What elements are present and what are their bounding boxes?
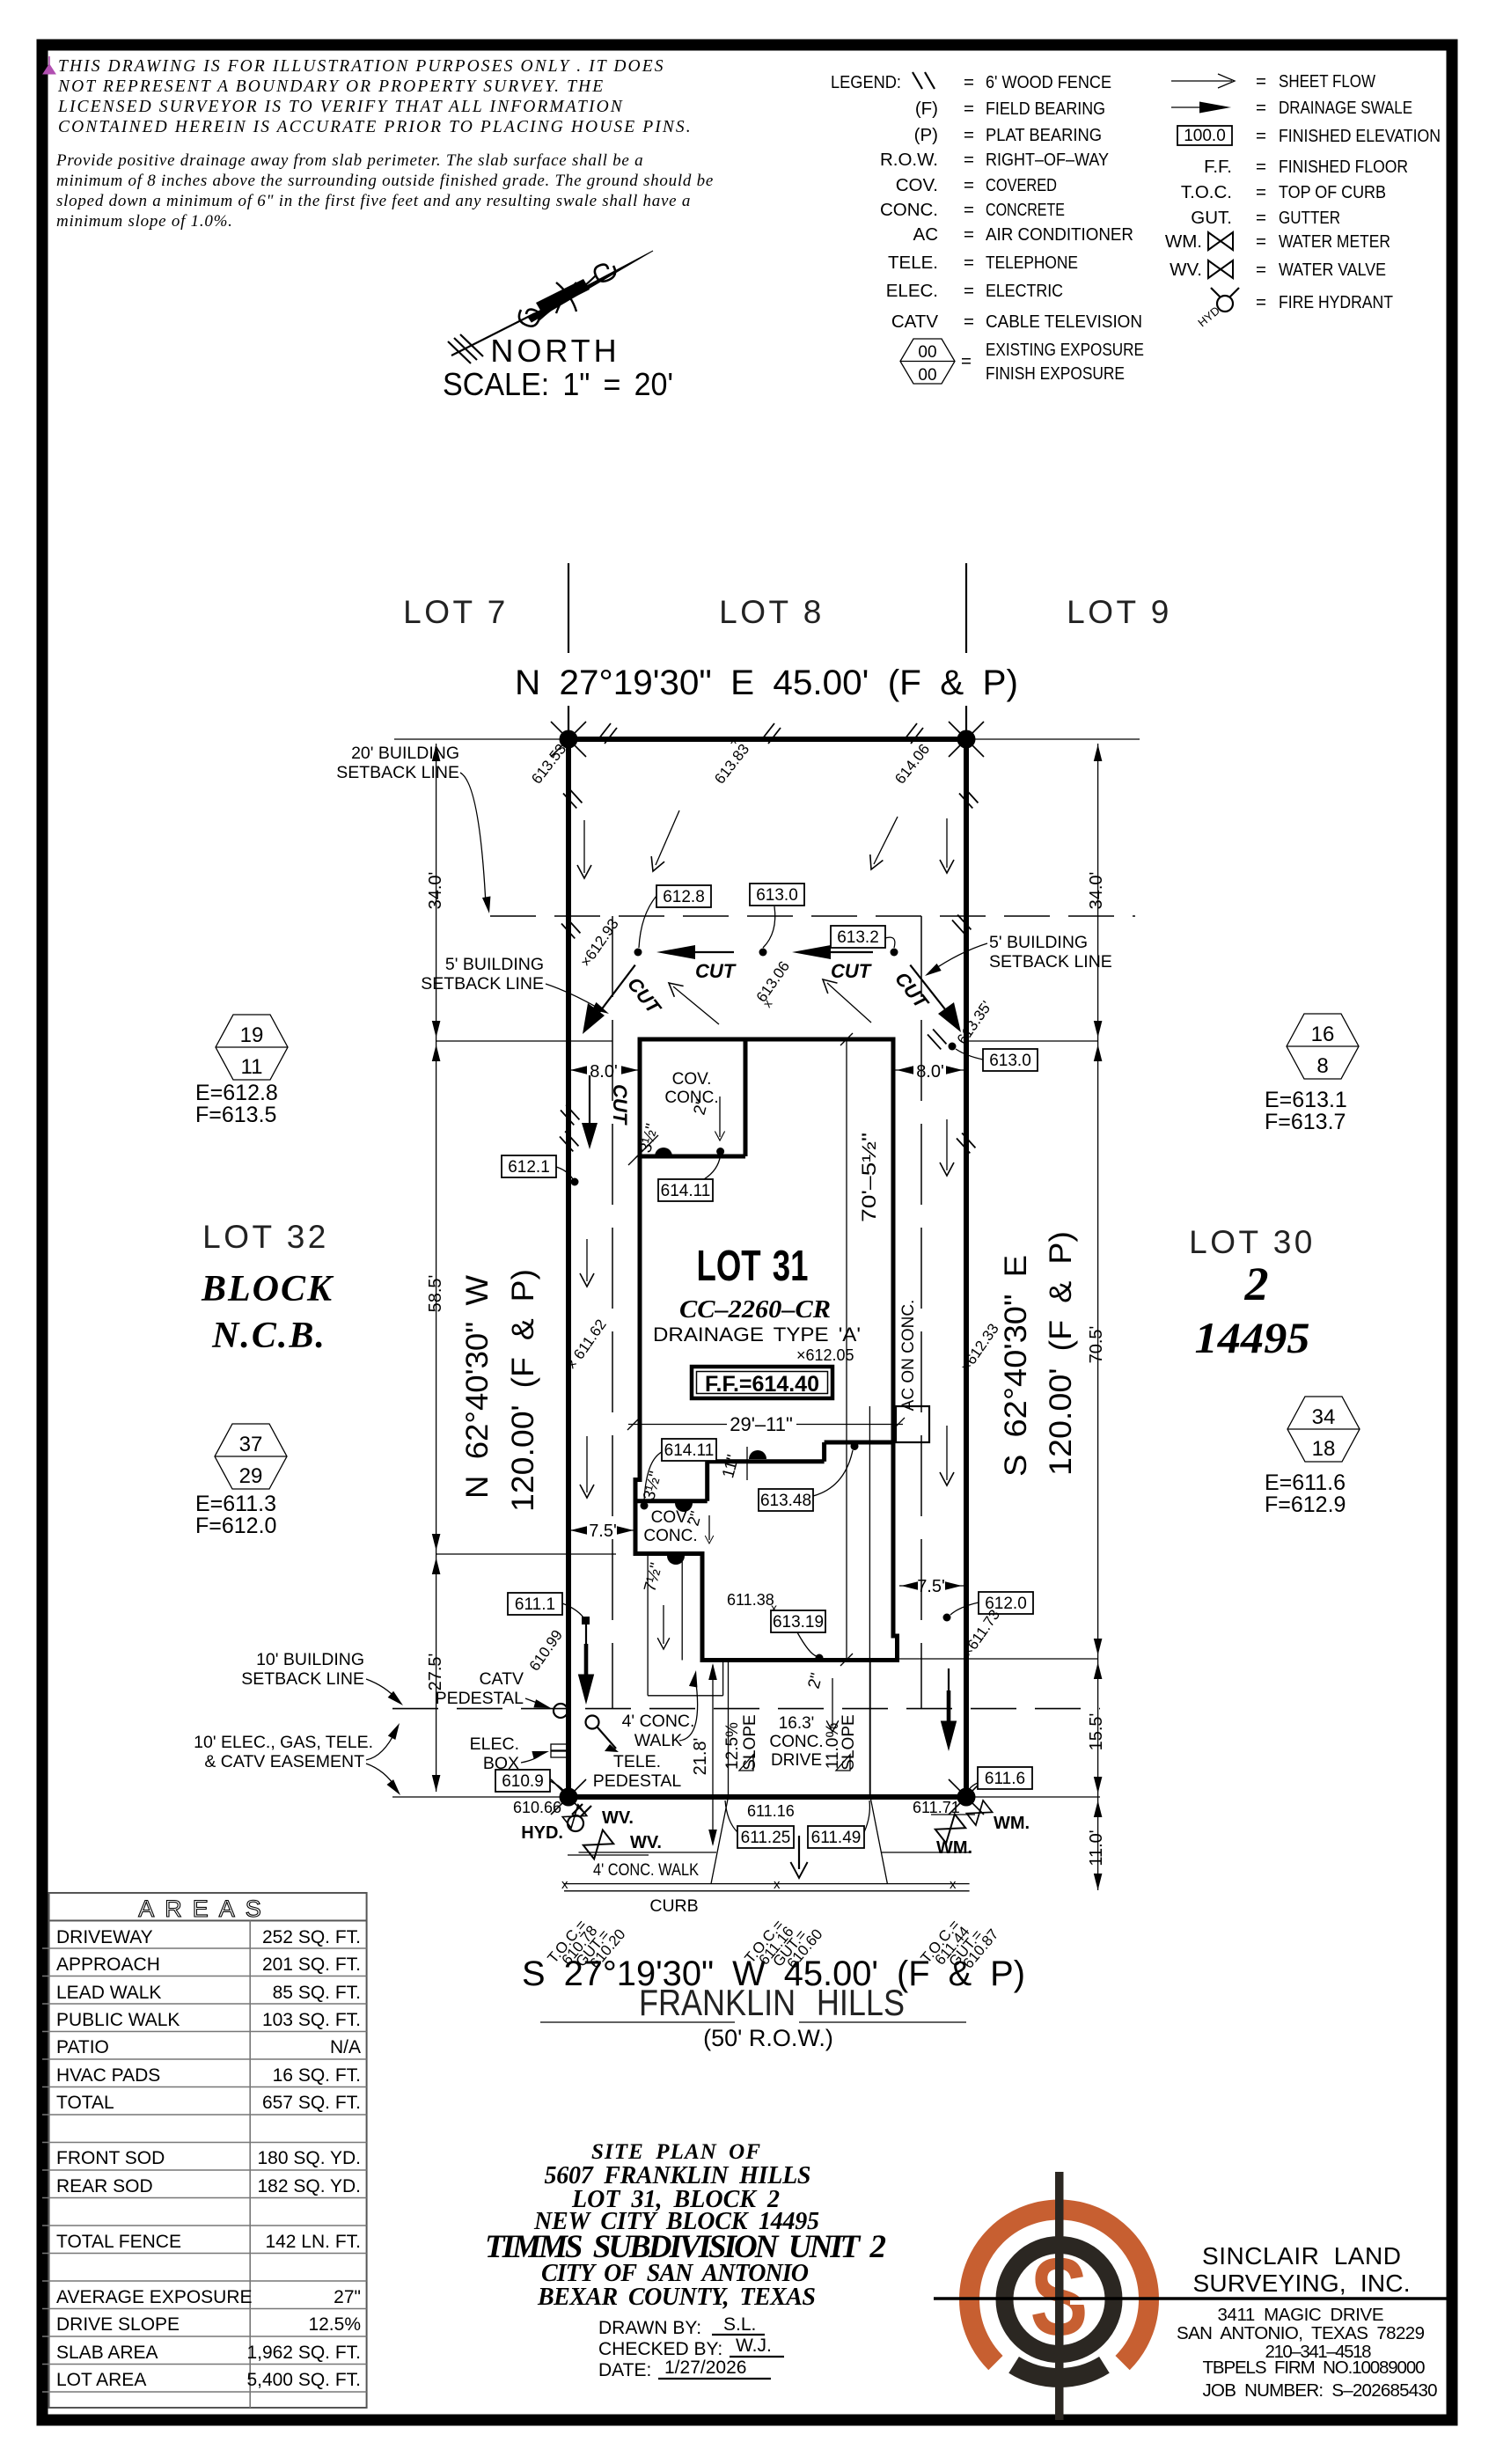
svg-text:=: = bbox=[964, 281, 974, 301]
svg-text:8.0': 8.0' bbox=[590, 1062, 618, 1082]
svg-text:LICENSED SURVEYOR IS TO VERIFY: LICENSED SURVEYOR IS TO VERIFY THAT ALL … bbox=[57, 98, 624, 116]
svg-text:LEAD WALK: LEAD WALK bbox=[56, 1983, 161, 2003]
svg-text:ELEC.: ELEC. bbox=[886, 281, 938, 301]
svg-text:2: 2 bbox=[1244, 1258, 1269, 1310]
svg-text:613.0: 613.0 bbox=[756, 886, 798, 905]
svg-text:SETBACK LINE: SETBACK LINE bbox=[989, 952, 1112, 972]
svg-text:F=612.9: F=612.9 bbox=[1265, 1492, 1346, 1517]
svg-text:7.5': 7.5' bbox=[589, 1522, 617, 1541]
svg-text:613.2: 613.2 bbox=[837, 928, 879, 947]
svg-text:F=613.5: F=613.5 bbox=[195, 1103, 276, 1127]
svg-text:14495: 14495 bbox=[1195, 1313, 1310, 1362]
svg-text:58.5': 58.5' bbox=[426, 1275, 445, 1313]
svg-text:TOTAL: TOTAL bbox=[56, 2093, 114, 2113]
svg-text:SCALE: 1" = 20': SCALE: 1" = 20' bbox=[443, 366, 673, 402]
svg-text:611.71: 611.71 bbox=[913, 1799, 960, 1816]
svg-text:SETBACK LINE: SETBACK LINE bbox=[241, 1669, 364, 1689]
svg-text:LOT AREA: LOT AREA bbox=[56, 2370, 146, 2390]
svg-text:8: 8 bbox=[1316, 1054, 1328, 1078]
svg-text:N.C.B.: N.C.B. bbox=[211, 1316, 326, 1356]
svg-text:WV.: WV. bbox=[630, 1833, 662, 1852]
svg-text:S.L.: S.L. bbox=[723, 2314, 756, 2335]
svg-text:x: x bbox=[561, 1877, 568, 1892]
svg-text:611.6: 611.6 bbox=[985, 1770, 1025, 1788]
svg-text:70.5': 70.5' bbox=[1087, 1326, 1106, 1364]
svg-text:=: = bbox=[1256, 292, 1266, 312]
svg-text:10' ELEC., GAS, TELE.: 10' ELEC., GAS, TELE. bbox=[194, 1733, 373, 1752]
svg-text:611.16: 611.16 bbox=[747, 1802, 795, 1820]
svg-text:TOP OF CURB: TOP OF CURB bbox=[1279, 182, 1386, 202]
svg-text:CUT: CUT bbox=[695, 960, 737, 982]
svg-text:=: = bbox=[964, 253, 974, 273]
svg-text:=: = bbox=[964, 224, 974, 245]
svg-text:COV.: COV. bbox=[896, 175, 938, 195]
svg-text:CONC.: CONC. bbox=[643, 1527, 697, 1545]
svg-text:=: = bbox=[964, 99, 974, 119]
svg-text:ELECTRIC: ELECTRIC bbox=[986, 281, 1063, 301]
svg-text:=: = bbox=[1256, 126, 1266, 146]
svg-text:10' BUILDING: 10' BUILDING bbox=[256, 1650, 364, 1669]
svg-text:CATV: CATV bbox=[891, 312, 938, 332]
svg-text:BOX: BOX bbox=[483, 1754, 519, 1773]
svg-text:S 62°40'30" E: S 62°40'30" E bbox=[998, 1255, 1033, 1477]
svg-text:=: = bbox=[1256, 98, 1266, 118]
svg-text:E=611.6: E=611.6 bbox=[1265, 1470, 1346, 1495]
svg-text:5,400 SQ. FT.: 5,400 SQ. FT. bbox=[246, 2370, 361, 2390]
svg-text:19: 19 bbox=[240, 1023, 264, 1047]
svg-text:COV.: COV. bbox=[672, 1070, 712, 1089]
svg-text:E=613.1: E=613.1 bbox=[1265, 1088, 1347, 1112]
svg-text:LOT 32: LOT 32 bbox=[202, 1219, 329, 1255]
svg-text:=: = bbox=[1256, 260, 1266, 280]
svg-text:CONTAINED HEREIN IS ACCURATE P: CONTAINED HEREIN IS ACCURATE PRIOR TO PL… bbox=[58, 118, 693, 136]
svg-text:CC–2260–CR: CC–2260–CR bbox=[679, 1296, 831, 1324]
svg-text:CONCRETE: CONCRETE bbox=[986, 200, 1065, 220]
svg-text:SETBACK LINE: SETBACK LINE bbox=[336, 763, 459, 782]
svg-text:=: = bbox=[964, 72, 974, 92]
svg-text:W.J.: W.J. bbox=[736, 2336, 772, 2356]
svg-text:DRAINAGE SWALE: DRAINAGE SWALE bbox=[1279, 98, 1412, 118]
svg-text:T.O.C.: T.O.C. bbox=[1181, 182, 1232, 202]
svg-text:613.0: 613.0 bbox=[989, 1052, 1031, 1070]
svg-text:=: = bbox=[961, 351, 972, 371]
svg-text:SETBACK LINE: SETBACK LINE bbox=[421, 974, 544, 994]
svg-text:SINCLAIR LAND: SINCLAIR LAND bbox=[1202, 2242, 1401, 2270]
svg-text:16.3': 16.3' bbox=[779, 1714, 815, 1733]
svg-text:GUTTER: GUTTER bbox=[1279, 208, 1340, 228]
svg-text:00: 00 bbox=[918, 343, 936, 362]
svg-text:TBPELS FIRM NO.10089000: TBPELS FIRM NO.10089000 bbox=[1203, 2358, 1426, 2378]
svg-text:LOT 8: LOT 8 bbox=[719, 594, 825, 630]
svg-text:37: 37 bbox=[239, 1433, 263, 1456]
svg-text:DRAWN BY:: DRAWN BY: bbox=[598, 2318, 701, 2338]
svg-text:PLAT BEARING: PLAT BEARING bbox=[986, 125, 1102, 145]
svg-text:657 SQ. FT.: 657 SQ. FT. bbox=[262, 2093, 361, 2113]
svg-text:85 SQ. FT.: 85 SQ. FT. bbox=[273, 1983, 361, 2003]
svg-text:12.5%: 12.5% bbox=[308, 2314, 361, 2335]
svg-text:NORTH: NORTH bbox=[490, 333, 620, 369]
svg-text:SAN ANTONIO, TEXAS 78229: SAN ANTONIO, TEXAS 78229 bbox=[1177, 2323, 1425, 2343]
svg-text:TELE.: TELE. bbox=[613, 1752, 661, 1771]
svg-text:WM.: WM. bbox=[936, 1838, 972, 1858]
svg-text:18: 18 bbox=[1312, 1437, 1336, 1461]
svg-text:34.0': 34.0' bbox=[1087, 872, 1106, 910]
svg-text:(50' R.O.W.): (50' R.O.W.) bbox=[703, 2025, 833, 2051]
svg-text:142 LN. FT.: 142 LN. FT. bbox=[265, 2232, 361, 2252]
svg-text:AREAS: AREAS bbox=[138, 1896, 272, 1922]
svg-text:SHEET FLOW: SHEET FLOW bbox=[1279, 71, 1376, 92]
svg-text:N 27°19'30" E 45.00' (F & P): N 27°19'30" E 45.00' (F & P) bbox=[515, 664, 1018, 702]
svg-text:613.19: 613.19 bbox=[773, 1613, 824, 1632]
svg-text:8.0': 8.0' bbox=[916, 1062, 944, 1082]
svg-text:E=611.3: E=611.3 bbox=[195, 1492, 276, 1516]
svg-text:F=613.7: F=613.7 bbox=[1265, 1110, 1346, 1134]
svg-text:x: x bbox=[730, 732, 737, 746]
svg-text:COVERED: COVERED bbox=[986, 175, 1057, 195]
svg-text:CABLE TELEVISION: CABLE TELEVISION bbox=[986, 312, 1142, 332]
svg-text:614.11: 614.11 bbox=[664, 1441, 715, 1460]
svg-text:DRAINAGE TYPE 'A': DRAINAGE TYPE 'A' bbox=[653, 1324, 861, 1346]
svg-text:DRIVE: DRIVE bbox=[771, 1751, 822, 1770]
svg-text:612.1: 612.1 bbox=[508, 1158, 550, 1177]
svg-text:=: = bbox=[964, 125, 974, 145]
svg-text:34: 34 bbox=[1312, 1405, 1336, 1429]
svg-text:FRONT SOD: FRONT SOD bbox=[56, 2148, 165, 2168]
svg-text:21.8': 21.8' bbox=[691, 1738, 710, 1776]
svg-text:minimum slope of 1.0%.: minimum slope of 1.0%. bbox=[56, 212, 233, 231]
svg-text:WV.: WV. bbox=[602, 1808, 634, 1828]
svg-text:12.5%: 12.5% bbox=[723, 1722, 742, 1770]
svg-text:SLOPE: SLOPE bbox=[840, 1714, 858, 1770]
svg-text:1/27/2026: 1/27/2026 bbox=[664, 2358, 746, 2378]
svg-text:610.9: 610.9 bbox=[502, 1772, 544, 1791]
svg-text:SITE PLAN OF: SITE PLAN OF bbox=[591, 2140, 760, 2164]
svg-text:FINISHED FLOOR: FINISHED FLOOR bbox=[1279, 157, 1408, 177]
svg-text:x: x bbox=[774, 1877, 781, 1892]
svg-text:AC ON CONC.: AC ON CONC. bbox=[899, 1300, 918, 1412]
svg-text:16: 16 bbox=[1311, 1023, 1335, 1046]
svg-text:PATIO: PATIO bbox=[56, 2037, 109, 2057]
svg-text:N/A: N/A bbox=[330, 2037, 361, 2057]
svg-text:611.1: 611.1 bbox=[515, 1595, 555, 1614]
svg-text:CURB: CURB bbox=[649, 1896, 698, 1916]
svg-text:& CATV EASEMENT: & CATV EASEMENT bbox=[204, 1752, 364, 1771]
svg-text:F=612.0: F=612.0 bbox=[195, 1514, 276, 1538]
svg-text:27": 27" bbox=[334, 2287, 361, 2307]
svg-text:F.F.: F.F. bbox=[1204, 157, 1232, 177]
svg-text:HYD.: HYD. bbox=[521, 1823, 563, 1843]
svg-text:120.00' (F & P): 120.00' (F & P) bbox=[1043, 1231, 1078, 1476]
svg-text:TOTAL FENCE: TOTAL FENCE bbox=[56, 2232, 181, 2252]
svg-text:NOT REPRESENT A BOUNDARY OR PR: NOT REPRESENT A BOUNDARY OR PROPERTY SUR… bbox=[57, 77, 605, 96]
svg-text:120.00' (F & P): 120.00' (F & P) bbox=[505, 1269, 540, 1512]
svg-text:20' BUILDING: 20' BUILDING bbox=[351, 744, 459, 763]
svg-text:=: = bbox=[964, 200, 974, 220]
svg-text:WV.: WV. bbox=[1170, 260, 1202, 280]
svg-text:11.0': 11.0' bbox=[1087, 1830, 1106, 1866]
svg-text:=: = bbox=[964, 312, 974, 332]
svg-text:=: = bbox=[964, 150, 974, 170]
svg-text:minimum of 8 inches above the: minimum of 8 inches above the surroundin… bbox=[56, 172, 714, 190]
svg-text:1,962 SQ. FT.: 1,962 SQ. FT. bbox=[246, 2343, 361, 2363]
svg-text:x: x bbox=[950, 1877, 957, 1892]
svg-text:29: 29 bbox=[239, 1464, 263, 1488]
svg-text:CUT: CUT bbox=[831, 960, 872, 982]
svg-text:PEDESTAL: PEDESTAL bbox=[593, 1771, 682, 1791]
svg-text:WM.: WM. bbox=[1165, 231, 1202, 252]
svg-text:LOT 7: LOT 7 bbox=[403, 594, 509, 630]
svg-text:WM.: WM. bbox=[994, 1814, 1030, 1833]
svg-text:LOT 30: LOT 30 bbox=[1189, 1224, 1316, 1260]
svg-text:DRIVE SLOPE: DRIVE SLOPE bbox=[56, 2314, 180, 2335]
svg-text:611.25: 611.25 bbox=[741, 1829, 791, 1847]
svg-text:F.F.=614.40: F.F.=614.40 bbox=[705, 1372, 819, 1397]
svg-text:27.5': 27.5' bbox=[426, 1654, 445, 1691]
svg-text:LOT 9: LOT 9 bbox=[1067, 594, 1172, 630]
svg-text:103 SQ. FT.: 103 SQ. FT. bbox=[262, 2010, 361, 2030]
svg-text:611.49: 611.49 bbox=[811, 1829, 862, 1847]
svg-text:DRIVEWAY: DRIVEWAY bbox=[56, 1927, 153, 1947]
svg-text:WATER METER: WATER METER bbox=[1279, 231, 1390, 252]
svg-text:34.0': 34.0' bbox=[426, 872, 445, 910]
svg-text:610.66: 610.66 bbox=[513, 1799, 561, 1816]
svg-text:FINISHED ELEVATION: FINISHED ELEVATION bbox=[1279, 126, 1441, 146]
svg-text:AVERAGE EXPOSURE: AVERAGE EXPOSURE bbox=[56, 2287, 253, 2307]
svg-text:(P): (P) bbox=[914, 125, 938, 145]
svg-text:612.8: 612.8 bbox=[663, 888, 705, 906]
svg-text:REAR SOD: REAR SOD bbox=[56, 2176, 153, 2196]
svg-text:11: 11 bbox=[241, 1055, 263, 1079]
svg-text:BEXAR COUNTY, TEXAS: BEXAR COUNTY, TEXAS bbox=[537, 2284, 816, 2311]
svg-text:BLOCK: BLOCK bbox=[201, 1269, 334, 1309]
svg-text:FIELD BEARING: FIELD BEARING bbox=[986, 99, 1105, 119]
svg-text:×612.05: ×612.05 bbox=[796, 1346, 854, 1364]
svg-text:PEDESTAL: PEDESTAL bbox=[436, 1689, 524, 1708]
svg-text:TELE.: TELE. bbox=[888, 253, 938, 273]
svg-text:00: 00 bbox=[918, 366, 936, 385]
svg-text:FRANKLIN HILLS: FRANKLIN HILLS bbox=[639, 1982, 905, 2023]
svg-text:SLAB AREA: SLAB AREA bbox=[56, 2343, 158, 2363]
svg-text:FINISH EXPOSURE: FINISH EXPOSURE bbox=[986, 363, 1125, 384]
svg-text:RIGHT–OF–WAY: RIGHT–OF–WAY bbox=[986, 150, 1109, 170]
svg-text:THIS DRAWING IS FOR ILLUSTRATI: THIS DRAWING IS FOR ILLUSTRATION PURPOSE… bbox=[58, 57, 665, 76]
svg-text:(F): (F) bbox=[915, 99, 938, 119]
svg-text:7.5': 7.5' bbox=[917, 1577, 945, 1596]
svg-text:Provide positive drainage away: Provide positive drainage away from slab… bbox=[55, 151, 643, 170]
svg-text:70'–5½": 70'–5½" bbox=[858, 1133, 880, 1222]
svg-text:ELEC.: ELEC. bbox=[470, 1734, 519, 1754]
svg-text:PUBLIC WALK: PUBLIC WALK bbox=[56, 2010, 180, 2030]
svg-text:WALK: WALK bbox=[634, 1731, 683, 1750]
svg-text:100.0: 100.0 bbox=[1184, 127, 1226, 145]
svg-text:TELEPHONE: TELEPHONE bbox=[986, 253, 1078, 273]
svg-text:=: = bbox=[1256, 157, 1266, 177]
svg-text:=: = bbox=[1256, 231, 1266, 252]
svg-text:4' CONC.: 4' CONC. bbox=[622, 1712, 695, 1731]
svg-text:611.38: 611.38 bbox=[727, 1591, 774, 1609]
svg-text:29'–11": 29'–11" bbox=[730, 1413, 793, 1435]
svg-text:5' BUILDING: 5' BUILDING bbox=[445, 955, 544, 974]
svg-text:SLOPE: SLOPE bbox=[741, 1714, 759, 1770]
svg-text:E=612.8: E=612.8 bbox=[195, 1081, 278, 1105]
svg-text:GUT.: GUT. bbox=[1191, 208, 1232, 228]
svg-text:=: = bbox=[1256, 182, 1266, 202]
svg-text:201 SQ. FT.: 201 SQ. FT. bbox=[262, 1954, 361, 1975]
svg-text:CHECKED BY:: CHECKED BY: bbox=[598, 2339, 722, 2359]
svg-text:CUT: CUT bbox=[609, 1084, 631, 1126]
svg-text:=: = bbox=[1256, 208, 1266, 228]
svg-text:APPROACH: APPROACH bbox=[56, 1954, 160, 1975]
svg-text:15.5': 15.5' bbox=[1087, 1713, 1106, 1751]
svg-text:=: = bbox=[964, 175, 974, 195]
svg-text:16 SQ. FT.: 16 SQ. FT. bbox=[273, 2065, 361, 2086]
svg-text:252 SQ. FT.: 252 SQ. FT. bbox=[262, 1927, 361, 1947]
svg-text:6' WOOD FENCE: 6' WOOD FENCE bbox=[986, 72, 1111, 92]
svg-text:SURVEYING, INC.: SURVEYING, INC. bbox=[1193, 2270, 1411, 2297]
svg-text:=: = bbox=[1256, 71, 1266, 92]
svg-text:CATV: CATV bbox=[479, 1669, 524, 1689]
svg-text:FIRE HYDRANT: FIRE HYDRANT bbox=[1279, 292, 1393, 312]
svg-text:EXISTING EXPOSURE: EXISTING EXPOSURE bbox=[986, 340, 1144, 360]
svg-text:N 62°40'30" W: N 62°40'30" W bbox=[459, 1274, 495, 1499]
svg-text:DATE:: DATE: bbox=[598, 2360, 651, 2380]
svg-text:sloped down a minimum of 6" in: sloped down a minimum of 6" in the first… bbox=[56, 192, 691, 210]
svg-text:CONC.: CONC. bbox=[769, 1733, 823, 1751]
svg-text:HVAC PADS: HVAC PADS bbox=[56, 2065, 160, 2086]
svg-text:CONC.: CONC. bbox=[880, 200, 938, 220]
svg-text:R.O.W.: R.O.W. bbox=[880, 150, 938, 170]
svg-text:WATER VALVE: WATER VALVE bbox=[1279, 260, 1386, 280]
svg-text:AC: AC bbox=[913, 224, 939, 245]
svg-text:614.11: 614.11 bbox=[661, 1182, 711, 1200]
svg-text:4' CONC. WALK: 4' CONC. WALK bbox=[593, 1860, 699, 1880]
svg-text:JOB NUMBER: S–202685430: JOB NUMBER: S–202685430 bbox=[1203, 2380, 1438, 2401]
svg-text:180 SQ. YD.: 180 SQ. YD. bbox=[257, 2148, 361, 2168]
svg-text:LEGEND:: LEGEND: bbox=[831, 72, 901, 92]
svg-text:AIR CONDITIONER: AIR CONDITIONER bbox=[986, 224, 1133, 245]
svg-text:3411 MAGIC DRIVE: 3411 MAGIC DRIVE bbox=[1218, 2305, 1384, 2325]
svg-text:613.48: 613.48 bbox=[760, 1492, 811, 1510]
svg-text:5' BUILDING: 5' BUILDING bbox=[989, 933, 1088, 952]
svg-text:LOT 31: LOT 31 bbox=[697, 1243, 809, 1290]
svg-text:182 SQ. YD.: 182 SQ. YD. bbox=[257, 2176, 361, 2196]
